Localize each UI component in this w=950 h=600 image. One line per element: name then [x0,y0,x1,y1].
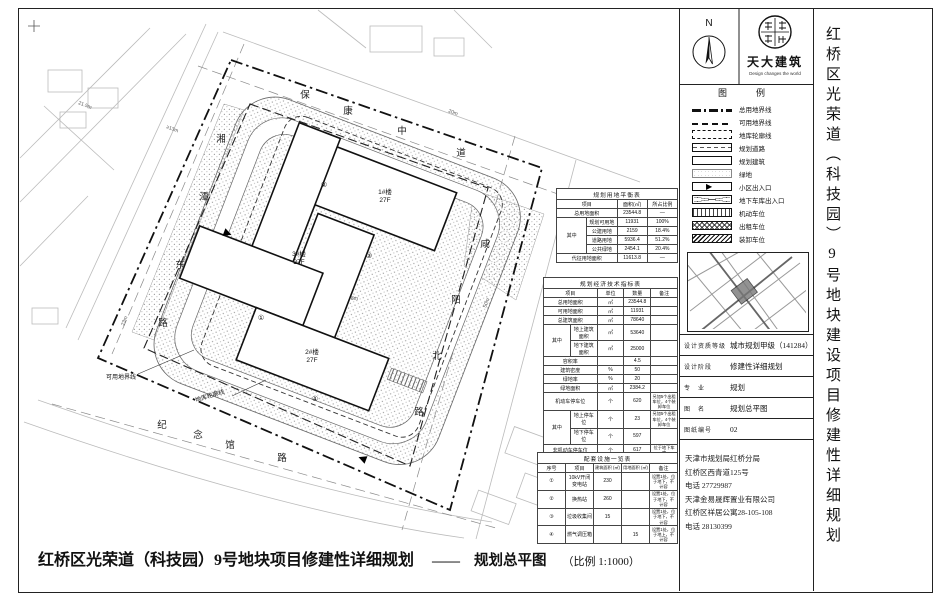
sheet-frame [18,8,933,593]
strip-divider [813,8,814,591]
drawing-sheet: 保 康 中 道 咸 阳 北 路 湘 潭 东 路 纪 念 馆 路 1#楼 27F … [0,0,950,600]
panel-divider [679,8,680,591]
